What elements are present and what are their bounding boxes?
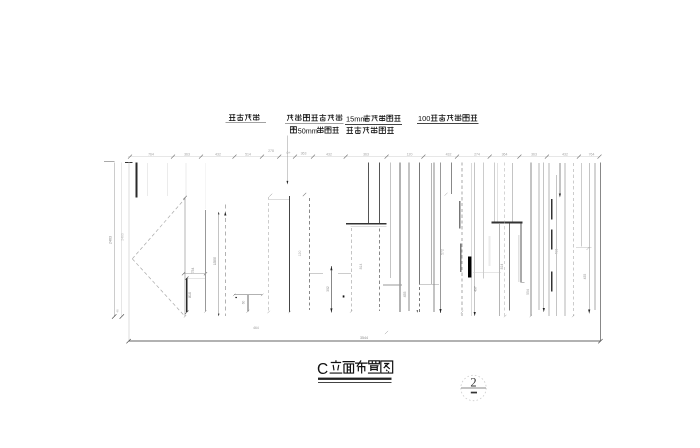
svg-text:120: 120 (407, 152, 413, 156)
svg-text:814: 814 (359, 264, 363, 270)
svg-text:1500: 1500 (213, 257, 217, 265)
svg-text:764: 764 (589, 152, 595, 156)
svg-text:2463: 2463 (121, 233, 125, 241)
svg-text:363: 363 (531, 152, 537, 156)
svg-text:100: 100 (418, 114, 430, 123)
svg-text:302: 302 (326, 286, 330, 292)
svg-text:15mm: 15mm (346, 114, 367, 123)
svg-text:3544: 3544 (360, 336, 368, 340)
svg-text:432: 432 (326, 152, 332, 156)
svg-text:2: 2 (470, 375, 476, 389)
svg-text:2463: 2463 (109, 236, 113, 244)
svg-text:435: 435 (583, 274, 587, 280)
svg-text:572: 572 (441, 249, 445, 255)
svg-text:48: 48 (115, 309, 119, 313)
svg-text:432: 432 (562, 152, 568, 156)
svg-text:60: 60 (242, 301, 246, 305)
svg-text:432: 432 (446, 152, 452, 156)
svg-text:754: 754 (191, 268, 195, 274)
svg-text:497: 497 (474, 286, 478, 292)
svg-text:554: 554 (526, 289, 530, 295)
svg-text:764: 764 (148, 152, 154, 156)
svg-text:364: 364 (502, 152, 508, 156)
svg-text:464: 464 (253, 326, 259, 330)
svg-text:814: 814 (500, 264, 504, 270)
svg-text:455: 455 (403, 292, 407, 298)
svg-text:363: 363 (184, 152, 190, 156)
svg-text:278: 278 (268, 149, 274, 153)
svg-text:50mm: 50mm (298, 126, 318, 135)
svg-text:432: 432 (215, 152, 221, 156)
svg-text:274: 274 (474, 152, 480, 156)
svg-text:810: 810 (188, 292, 192, 298)
svg-text:363: 363 (301, 151, 307, 155)
svg-text:120: 120 (298, 251, 302, 257)
svg-text:363: 363 (363, 152, 369, 156)
svg-text:C: C (317, 361, 328, 378)
svg-text:514: 514 (245, 152, 251, 156)
